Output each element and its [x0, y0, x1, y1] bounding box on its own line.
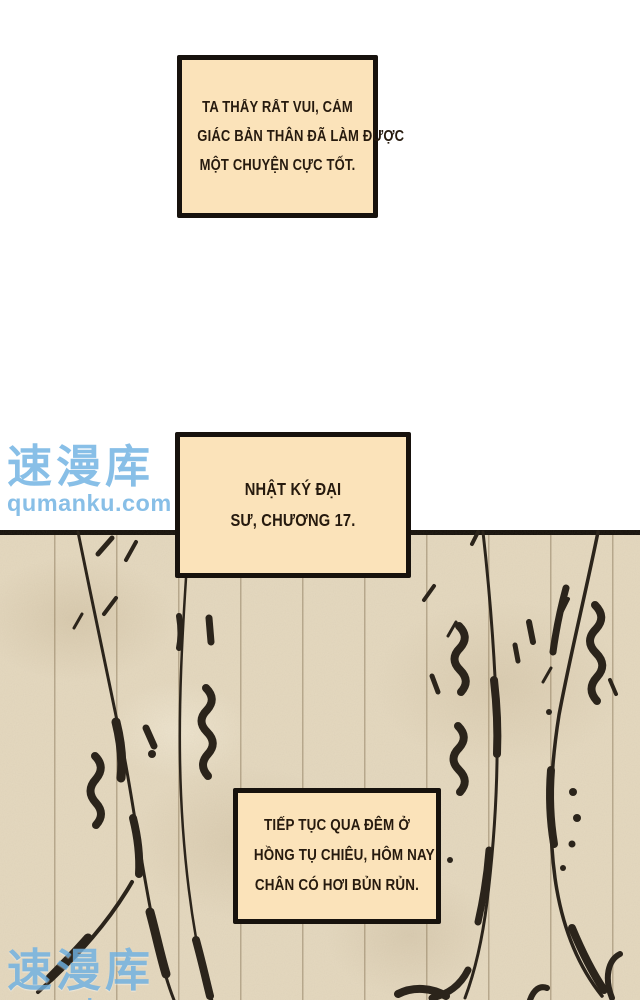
speech-bubble-joy: TA THẤY RẤT VUI, CẢM GIÁC BẢN THÂN ĐÃ LÀ… — [177, 55, 378, 218]
speech-bubble-diary-entry: TIẾP TỤC QUA ĐÊM Ở HỒNG TỤ CHIÊU, HÔM NA… — [233, 788, 441, 924]
speech-text: TA THẤY RẤT VUI, CẢM GIÁC BẢN THÂN ĐÃ LÀ… — [197, 93, 357, 180]
ink-panel — [0, 530, 640, 1000]
speech-text-line: TIẾP TỤC QUA ĐÊM Ở — [254, 811, 420, 841]
speech-text-line: NHẬT KÝ ĐẠI — [198, 474, 388, 505]
watermark-url-text: qumanku.com — [7, 492, 172, 516]
speech-text-line: TA THẤY RẤT VUI, CẢM — [197, 93, 357, 122]
speech-text: TIẾP TỤC QUA ĐÊM Ở HỒNG TỤ CHIÊU, HÔM NA… — [254, 811, 420, 901]
watermark-cjk-text: 速漫库 — [7, 948, 172, 993]
speech-text-line: MỘT CHUYỆN CỰC TỐT. — [197, 151, 357, 180]
speech-text: NHẬT KÝ ĐẠI SƯ, CHƯƠNG 17. — [198, 474, 388, 536]
speech-text-line: HỒNG TỤ CHIÊU, HÔM NAY — [254, 841, 420, 871]
comic-page: TA THẤY RẤT VUI, CẢM GIÁC BẢN THÂN ĐÃ LÀ… — [0, 0, 640, 1000]
ink-brush-reeds-art — [0, 530, 640, 1000]
speech-text-line: GIÁC BẢN THÂN ĐÃ LÀM ĐƯỢC — [197, 122, 357, 151]
speech-text-line: CHÂN CÓ HƠI BỦN RỦN. — [254, 871, 420, 901]
speech-text-line: SƯ, CHƯƠNG 17. — [198, 505, 388, 536]
site-watermark: 速漫库 qumanku.com — [7, 948, 172, 1000]
watermark-url-text: qumanku.com — [7, 996, 172, 1000]
speech-bubble-diary-title: NHẬT KÝ ĐẠI SƯ, CHƯƠNG 17. — [175, 432, 411, 578]
site-watermark: 速漫库 qumanku.com — [7, 444, 172, 516]
watermark-cjk-text: 速漫库 — [7, 444, 172, 489]
